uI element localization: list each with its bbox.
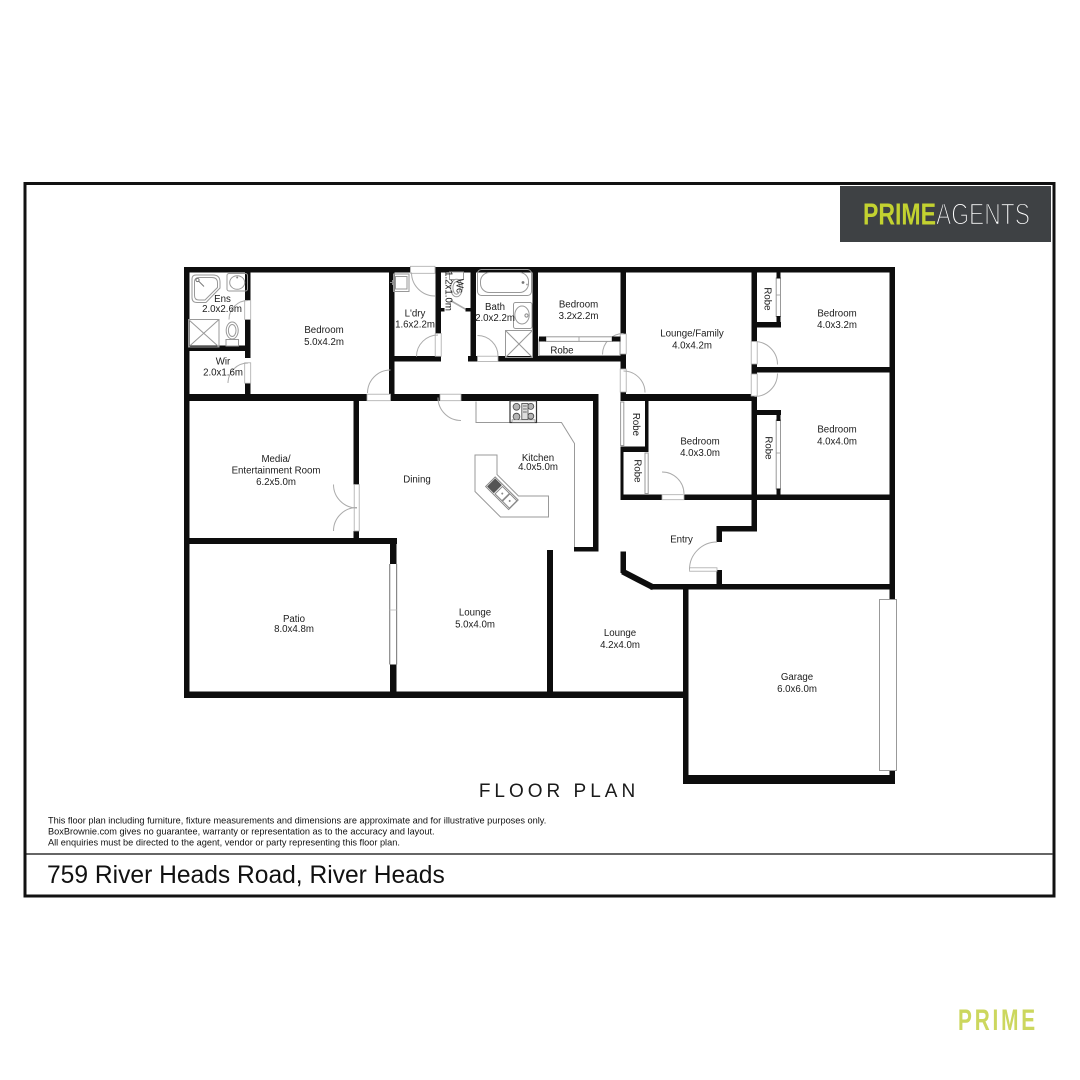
svg-text:This floor plan including furn: This floor plan including furniture, fix… [48, 816, 546, 826]
svg-text:Robe: Robe [763, 436, 774, 459]
svg-text:4.0x5.0m: 4.0x5.0m [518, 462, 558, 473]
svg-text:4.0x3.2m: 4.0x3.2m [817, 320, 857, 331]
svg-text:5.0x4.2m: 5.0x4.2m [304, 337, 344, 348]
svg-text:Robe: Robe [630, 413, 641, 436]
svg-text:FLOOR PLAN: FLOOR PLAN [479, 781, 639, 802]
svg-text:Bedroom: Bedroom [817, 425, 856, 436]
svg-text:PRIME: PRIME [958, 1004, 1038, 1037]
svg-text:Wir: Wir [216, 357, 231, 368]
svg-text:Lounge: Lounge [604, 628, 636, 639]
svg-text:Lounge/Family: Lounge/Family [660, 329, 724, 340]
svg-text:2.0x2.2m: 2.0x2.2m [475, 313, 515, 324]
svg-text:Bedroom: Bedroom [304, 325, 343, 336]
svg-text:Robe: Robe [550, 346, 573, 357]
svg-text:All enquiries must be directed: All enquiries must be directed to the ag… [48, 838, 400, 848]
svg-text:Media/: Media/ [261, 454, 290, 465]
svg-text:Bedroom: Bedroom [559, 300, 598, 311]
svg-text:6.0x6.0m: 6.0x6.0m [777, 684, 817, 695]
svg-text:8.0x4.8m: 8.0x4.8m [274, 624, 314, 635]
svg-text:Dining: Dining [403, 475, 430, 486]
svg-text:Robe: Robe [762, 287, 773, 310]
svg-text:Garage: Garage [781, 672, 813, 683]
svg-text:Entry: Entry [670, 535, 693, 546]
svg-text:Lounge: Lounge [459, 608, 491, 619]
svg-text:1.6x2.2m: 1.6x2.2m [395, 320, 435, 331]
svg-text:2.0x2.6m: 2.0x2.6m [202, 304, 242, 315]
svg-text:AGENTS: AGENTS [936, 198, 1030, 232]
svg-text:4.0x4.0m: 4.0x4.0m [817, 437, 857, 448]
svg-text:2.0x1.6m: 2.0x1.6m [203, 368, 243, 379]
svg-text:BoxBrownie.com gives no guaran: BoxBrownie.com gives no guarantee, warra… [48, 827, 435, 837]
svg-text:PRIME: PRIME [863, 198, 936, 232]
svg-text:Entertainment Room: Entertainment Room [232, 466, 321, 477]
svg-text:1.2x1.0m: 1.2x1.0m [443, 271, 454, 311]
svg-text:6.2x5.0m: 6.2x5.0m [256, 477, 296, 488]
svg-text:Bath: Bath [485, 302, 505, 313]
svg-text:4.2x4.0m: 4.2x4.0m [600, 640, 640, 651]
svg-text:3.2x2.2m: 3.2x2.2m [559, 311, 599, 322]
svg-text:Wc: Wc [454, 279, 465, 293]
svg-text:759 River Heads Road, River He: 759 River Heads Road, River Heads [47, 862, 445, 889]
svg-text:5.0x4.0m: 5.0x4.0m [455, 620, 495, 631]
svg-text:Bedroom: Bedroom [817, 309, 856, 320]
svg-text:4.0x3.0m: 4.0x3.0m [680, 448, 720, 459]
svg-text:Bedroom: Bedroom [680, 437, 719, 448]
svg-text:L'dry: L'dry [405, 309, 426, 320]
svg-text:Robe: Robe [632, 459, 643, 482]
svg-text:4.0x4.2m: 4.0x4.2m [672, 341, 712, 352]
